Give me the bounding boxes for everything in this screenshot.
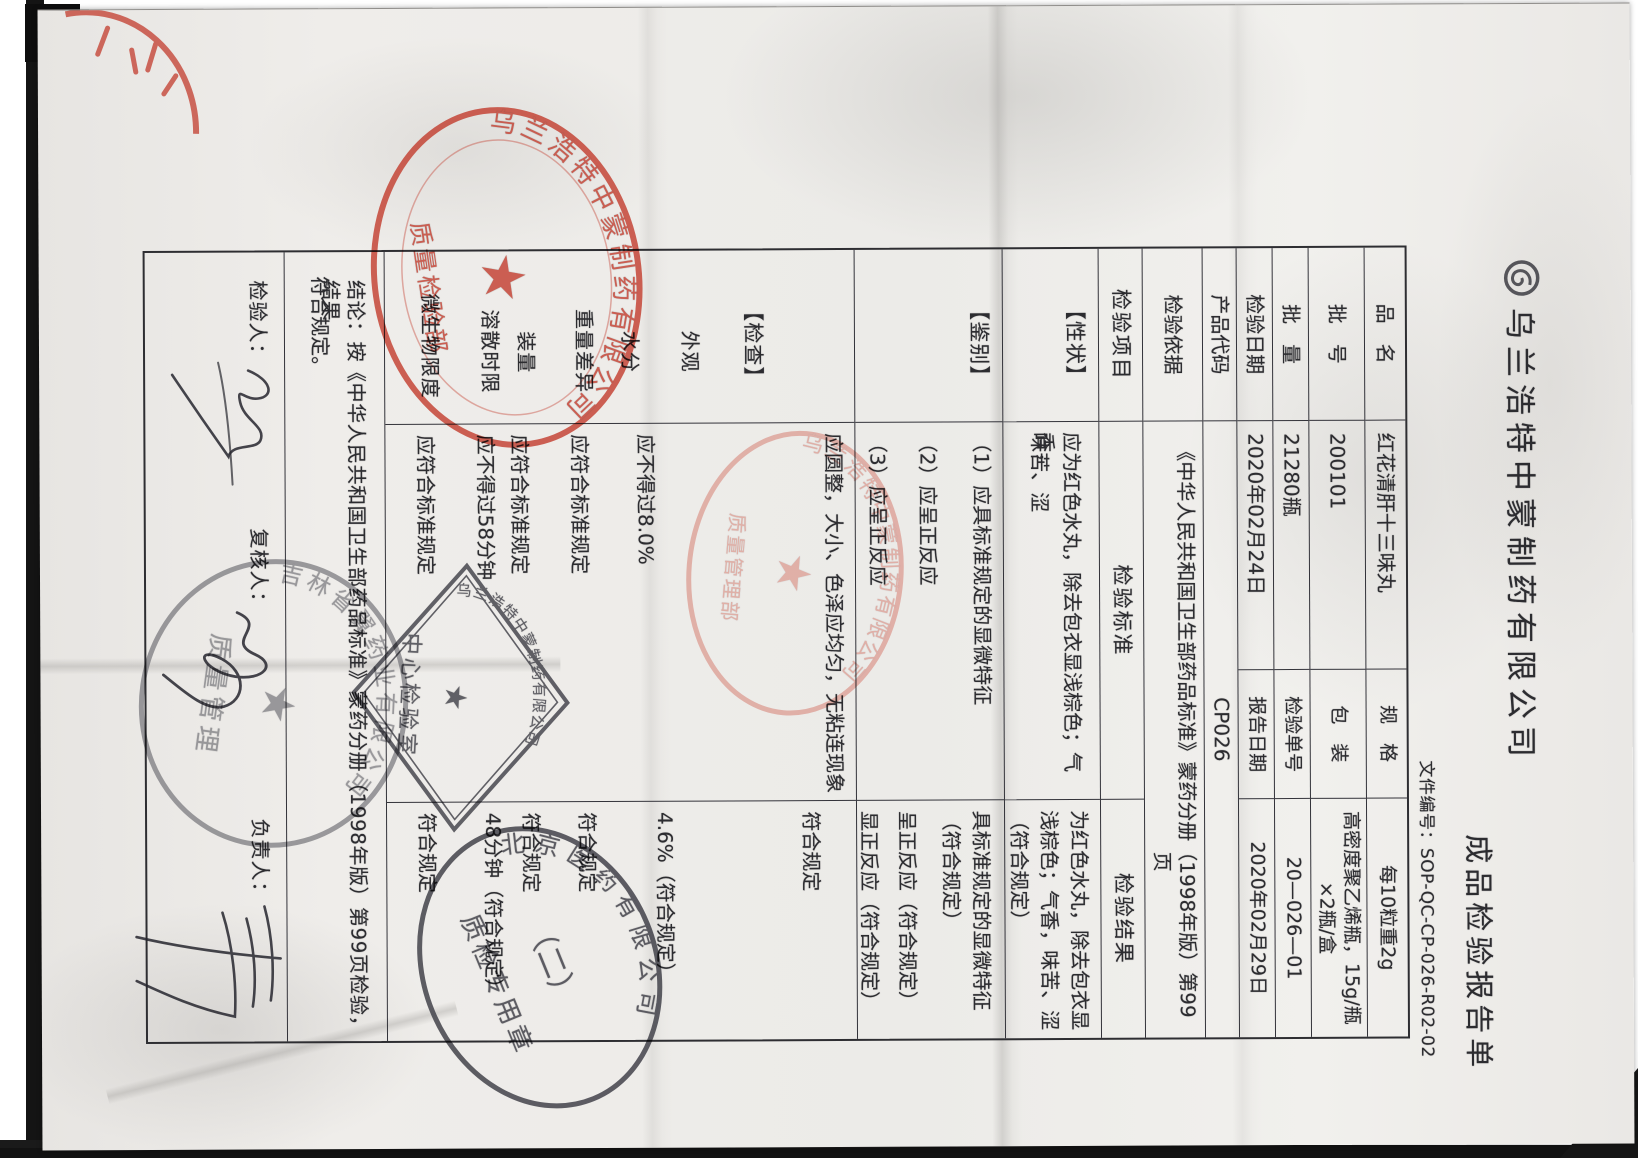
value-spec: 每10粒重2g xyxy=(1367,798,1408,1037)
standard-line: （1）应具标准规定的显微特征 xyxy=(968,432,996,795)
standard-line: 应符合标准规定 xyxy=(506,434,534,797)
table-row-batch-no: 批 号 200101 包 装 高密度聚乙烯瓶，15g/瓶×2瓶/盒 xyxy=(1309,248,1368,1037)
inspection-standard-cell: 应圆整，大小、色泽应均匀，无粘连现象 应不得过8.0% 应符合标准规定 应符合标… xyxy=(385,422,856,802)
value-product-name: 红花清肝十三味丸 xyxy=(1365,420,1406,669)
section-name: 【检查】 xyxy=(740,300,767,388)
header-test-item: 检验项目 xyxy=(1099,249,1143,421)
report-header: 乌兰浩特中蒙制药有限公司 xyxy=(1500,258,1547,764)
result-line: （符合规定） xyxy=(938,811,965,1035)
identification-standard-cell: （1）应具标准规定的显微特征 （2）应呈正反应 （3）应呈正反应 xyxy=(855,421,1004,800)
report-document: 乌兰浩特中蒙制药有限公司 成品检验报告单 文件编号：SOP-QC-CP-026-… xyxy=(58,8,1601,1145)
company-logo-icon xyxy=(1502,258,1542,298)
conclusion-line1: 结论：按《中华人民共和国卫生部药品标准》蒙药分册（1998年版）第99页检验，结… xyxy=(318,280,371,1041)
standard-line: 应符合标准规定 xyxy=(566,434,594,797)
value-test-date: 2020年02月24日 xyxy=(1237,420,1273,669)
value-product-code: CP026 xyxy=(1203,420,1239,1037)
test-basis-line2: 页 xyxy=(1150,852,1175,872)
identification-name-cell: 【鉴别】 xyxy=(855,249,1003,422)
result-line: （符合规定） xyxy=(1006,810,1033,1034)
scanned-paper: 乌兰浩特中蒙制药有限公司 成品检验报告单 文件编号：SOP-QC-CP-026-… xyxy=(38,3,1635,1151)
value-test-basis: 《中华人民共和国卫生部药品标准》蒙药分册（1998年版）第99 页 xyxy=(1143,421,1205,1038)
result-line: 具标准规定的显微特征 xyxy=(968,811,995,1035)
label-batch-qty: 批 量 xyxy=(1273,248,1309,420)
appearance-name-cell: 【性状】 xyxy=(1003,249,1099,422)
result-line: 呈正反应（符合规定） xyxy=(894,811,921,1035)
reviewer-signature xyxy=(151,604,282,755)
conclusion-cell: 结论：按《中华人民共和国卫生部药品标准》蒙药分册（1998年版）第99页检验，结… xyxy=(285,252,387,1041)
value-packaging: 高密度聚乙烯瓶，15g/瓶×2瓶/盒 xyxy=(1311,798,1367,1037)
standard-line: 应圆整，大小、色泽应均匀，无粘连现象 xyxy=(820,433,848,796)
standard-line: 应不得过58分钟 xyxy=(472,435,500,798)
inspector-label: 检验人： xyxy=(245,280,270,364)
reviewer-label: 复核人： xyxy=(246,528,271,612)
table-header-row: 检验项目 检验标准 检验结果 xyxy=(1099,249,1146,1038)
label-spec: 规 格 xyxy=(1366,668,1407,798)
value-report-date: 2020年02月29日 xyxy=(1239,798,1275,1037)
report-title: 成品检验报告单 xyxy=(1459,834,1502,1072)
label-batch-no: 批 号 xyxy=(1309,248,1365,420)
inspection-result-cell: 符合规定 4.6%（符合规定） 符合规定 符合规定 48分钟（符合规定） 符合规… xyxy=(387,800,857,1041)
section-name: 【鉴别】 xyxy=(966,299,993,387)
item-label: 装量 xyxy=(513,331,538,373)
value-test-sheet-no: 20—026—01 xyxy=(1275,798,1311,1037)
label-test-sheet-no: 检验单号 xyxy=(1274,669,1310,798)
appearance-result-cell: 为红色水丸，除去包衣显 浅棕色；气香，味苦、涩 （符合规定） xyxy=(1005,799,1101,1038)
label-packaging: 包 装 xyxy=(1310,669,1366,799)
identification-result-cell: 具标准规定的显微特征 （符合规定） 呈正反应（符合规定） 显正反应（符合规定） xyxy=(857,799,1005,1038)
item-label: 外观 xyxy=(677,331,702,373)
value-batch-no: 200101 xyxy=(1309,420,1365,669)
appearance-standard-cell: 应为红色水丸，除去包衣显浅棕色；气香， 味苦、涩 xyxy=(1003,421,1100,799)
item-label: 重量差异 xyxy=(571,309,596,393)
standard-line: （3）应呈正反应 xyxy=(864,433,892,796)
result-line: 符合规定 xyxy=(574,812,601,1036)
header-test-standard: 检验标准 xyxy=(1099,421,1144,799)
conclusion-row: 结论：按《中华人民共和国卫生部药品标准》蒙药分册（1998年版）第99页检验，结… xyxy=(285,252,388,1041)
inspection-name-cell: 【检查】 外观 水分 重量差异 装量 溶散时限 微生物限度 xyxy=(385,250,855,424)
table-row-batch-qty: 批 量 21280瓶 检验单号 20—026—01 xyxy=(1273,248,1312,1037)
result-line: 为红色水丸，除去包衣显 xyxy=(1066,810,1093,1034)
result-line: 显正反应（符合规定） xyxy=(856,811,883,1035)
label-product-code: 产品代码 xyxy=(1203,248,1237,420)
document-number: 文件编号：SOP-QC-CP-026-R02-02 xyxy=(1416,760,1442,1057)
result-line: 符合规定 xyxy=(798,811,825,1035)
director-signature xyxy=(116,888,287,1059)
standard-line: （2）应呈正反应 xyxy=(914,433,942,796)
section-name: 【性状】 xyxy=(1062,299,1089,387)
red-stamp-fragment xyxy=(55,3,216,155)
item-label: 溶散时限 xyxy=(477,309,502,393)
standard-line: 应符合标准规定 xyxy=(412,435,440,798)
label-test-date: 检验日期 xyxy=(1237,248,1273,420)
company-name: 乌兰浩特中蒙制药有限公司 xyxy=(1500,308,1547,764)
signature-cell: 检验人： 复核人： 负责人： xyxy=(145,252,287,1042)
section-appearance: 【性状】 应为红色水丸，除去包衣显浅棕色；气香， 味苦、涩 为红色水丸，除去包衣… xyxy=(1003,249,1102,1038)
result-line: 48分钟（符合规定） xyxy=(480,813,507,1037)
signature-row: 检验人： 复核人： 负责人： xyxy=(145,252,288,1042)
inspector-signature xyxy=(156,356,277,507)
result-line: 符合规定 xyxy=(518,812,545,1036)
result-line: 符合规定 xyxy=(414,813,441,1037)
inspection-table: 品 名 红花清肝十三味丸 规 格 每10粒重2g 批 号 200101 包 装 … xyxy=(143,246,1410,1045)
conclusion-line2: 符合规定。 xyxy=(307,276,332,376)
label-report-date: 报告日期 xyxy=(1238,669,1274,798)
standard-line: 应不得过8.0% xyxy=(632,434,660,797)
standard-line: 味苦、涩 xyxy=(1026,432,1054,795)
result-line: 4.6%（符合规定） xyxy=(652,812,679,1036)
test-basis-line1: 《中华人民共和国卫生部药品标准》蒙药分册（1998年版）第99 xyxy=(1173,441,1201,1017)
label-test-basis: 检验依据 xyxy=(1143,248,1203,420)
table-row-test-basis: 检验依据 《中华人民共和国卫生部药品标准》蒙药分册（1998年版）第99 页 xyxy=(1143,248,1206,1037)
label-product-name: 品 名 xyxy=(1365,248,1406,420)
header-test-result: 检验结果 xyxy=(1101,799,1145,1038)
section-inspection: 【检查】 外观 水分 重量差异 装量 溶散时限 微生物限度 应圆整，大小、色泽应… xyxy=(385,250,858,1041)
scanned-report-page: { "document": { "company": "乌兰浩特中蒙制药有限公司… xyxy=(0,0,1638,1158)
section-identification: 【鉴别】 （1）应具标准规定的显微特征 （2）应呈正反应 （3）应呈正反应 具标… xyxy=(855,249,1006,1039)
item-label: 微生物限度 xyxy=(417,294,442,399)
item-label: 水分 xyxy=(617,331,642,373)
result-line: 浅棕色；气香，味苦、涩 xyxy=(1036,810,1063,1034)
value-batch-qty: 21280瓶 xyxy=(1273,420,1309,669)
table-row-product: 品 名 红花清肝十三味丸 规 格 每10粒重2g xyxy=(1365,248,1408,1037)
table-row-dates: 检验日期 2020年02月24日 报告日期 2020年02月29日 xyxy=(1237,248,1276,1037)
table-row-product-code: 产品代码 CP026 xyxy=(1203,248,1240,1037)
